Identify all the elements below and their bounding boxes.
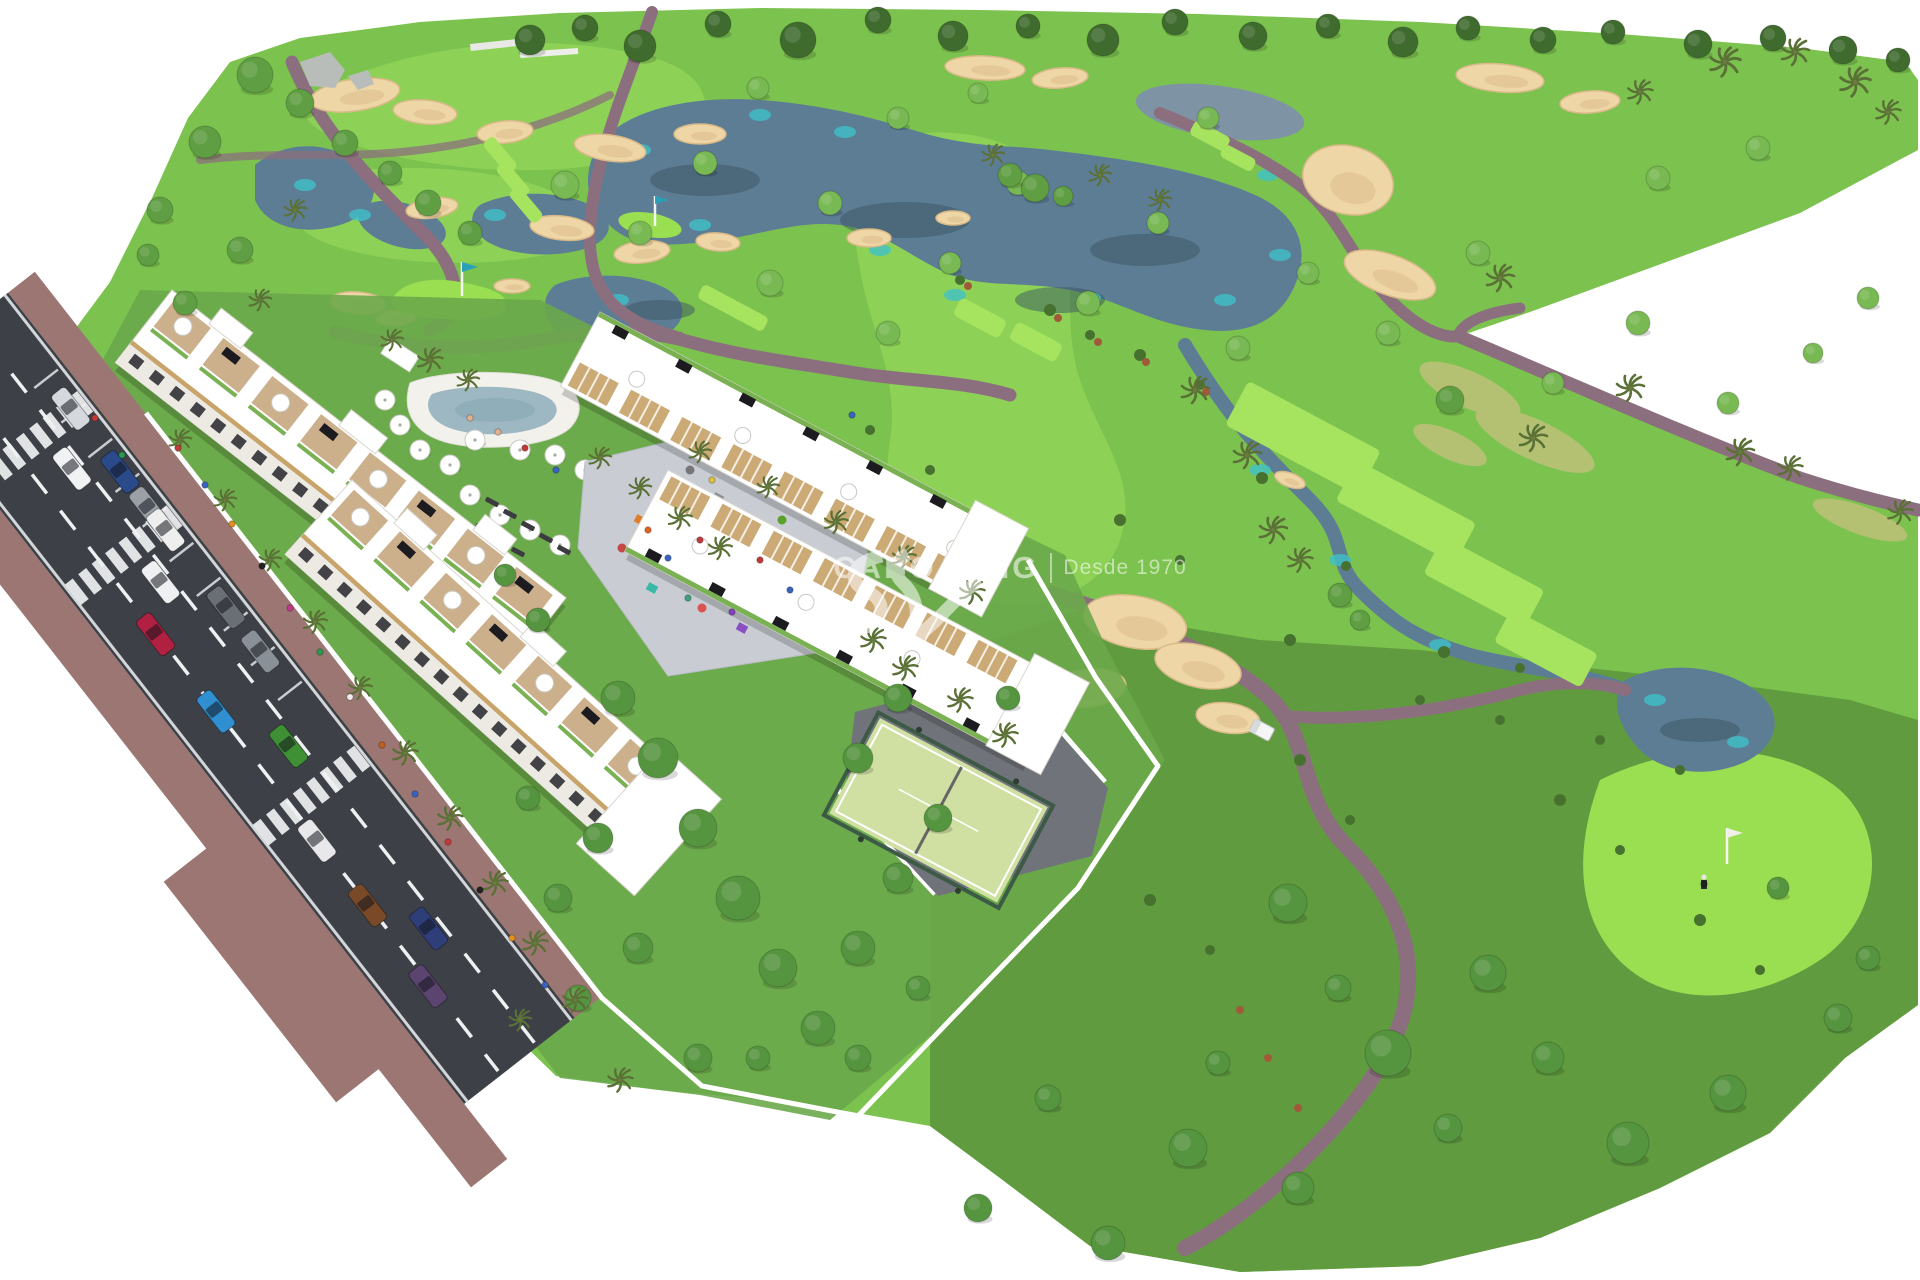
play-equipment xyxy=(698,604,707,613)
bush xyxy=(1205,945,1215,955)
person xyxy=(259,563,265,569)
tree-highlight xyxy=(1833,40,1846,53)
tree-highlight xyxy=(1749,139,1760,150)
tree-highlight xyxy=(230,240,242,252)
tree xyxy=(938,21,969,53)
tree-highlight xyxy=(1371,1036,1392,1057)
tree-highlight xyxy=(1392,31,1406,45)
tree-highlight xyxy=(1629,314,1640,325)
person xyxy=(685,595,691,601)
tree-highlight xyxy=(1828,1008,1841,1021)
bush xyxy=(1495,715,1505,725)
tree-highlight xyxy=(1165,12,1177,24)
tree-highlight xyxy=(150,200,162,212)
person xyxy=(697,537,703,543)
bunker-shade xyxy=(947,216,964,222)
tree-highlight xyxy=(764,954,781,971)
tree-highlight xyxy=(1091,28,1105,42)
tree xyxy=(1746,136,1771,161)
tree xyxy=(996,686,1021,711)
tree xyxy=(1607,1122,1649,1167)
tree-highlight xyxy=(519,29,533,43)
tree xyxy=(906,976,931,1001)
tree-highlight xyxy=(1209,1054,1220,1065)
tree-highlight xyxy=(1438,1118,1451,1131)
umbrella-pole xyxy=(553,453,556,456)
tree-highlight xyxy=(1763,28,1775,40)
tree-highlight xyxy=(1604,23,1615,34)
tree xyxy=(1325,975,1352,1003)
tree xyxy=(137,244,160,267)
person xyxy=(347,694,353,700)
tree-highlight xyxy=(971,86,980,95)
tree-highlight xyxy=(750,80,760,90)
tree-highlight xyxy=(627,937,641,951)
person xyxy=(477,887,483,893)
tree xyxy=(1365,1030,1411,1079)
tree xyxy=(1824,1004,1853,1034)
tree-highlight xyxy=(1200,110,1210,120)
tree-highlight xyxy=(847,747,861,761)
shallow-patch xyxy=(294,179,316,191)
tree-highlight xyxy=(749,1049,760,1060)
tree xyxy=(705,11,732,39)
tree-highlight xyxy=(242,62,258,78)
tree xyxy=(1470,955,1506,993)
bush xyxy=(1438,646,1450,658)
shallow-patch xyxy=(1214,294,1236,306)
tree xyxy=(1436,386,1465,416)
person xyxy=(412,791,418,797)
tree xyxy=(526,608,551,633)
person xyxy=(542,982,548,988)
tree xyxy=(746,1046,771,1071)
tree xyxy=(1162,9,1189,37)
umbrella-pole xyxy=(448,463,451,466)
tree xyxy=(237,57,273,95)
tree xyxy=(1206,1051,1231,1076)
person xyxy=(467,415,473,421)
bush xyxy=(1341,561,1351,571)
tree-highlight xyxy=(587,827,601,841)
tree xyxy=(693,151,718,176)
person xyxy=(509,935,515,941)
sand-bunker xyxy=(494,279,530,293)
person xyxy=(119,452,125,458)
tree xyxy=(1710,1075,1746,1113)
shallow-patch xyxy=(749,109,771,121)
tree xyxy=(876,321,901,346)
tree xyxy=(147,197,174,225)
bush xyxy=(1175,555,1185,565)
tree xyxy=(968,83,989,104)
tree-highlight xyxy=(529,611,540,622)
tree xyxy=(1601,20,1626,45)
bush xyxy=(1085,330,1095,340)
tree xyxy=(964,1194,993,1224)
tree-highlight xyxy=(887,867,901,881)
tree-highlight xyxy=(1319,17,1330,28)
tree-highlight xyxy=(684,814,701,831)
tree-highlight xyxy=(193,130,207,144)
tree-highlight xyxy=(1001,166,1012,177)
tree xyxy=(865,7,892,35)
bush xyxy=(1755,965,1765,975)
tree xyxy=(684,1044,713,1074)
red-shrub xyxy=(1294,1104,1302,1112)
tree xyxy=(583,823,614,855)
tree-highlight xyxy=(722,882,742,902)
tree-highlight xyxy=(1331,586,1342,597)
tree-highlight xyxy=(1889,51,1900,62)
umbrella-pole xyxy=(398,423,401,426)
tree xyxy=(841,931,875,967)
tree-highlight xyxy=(1150,215,1160,225)
play-equipment xyxy=(778,516,787,525)
person xyxy=(849,412,855,418)
red-shrub xyxy=(1264,1054,1272,1062)
red-shrub xyxy=(1142,358,1150,366)
bush xyxy=(1675,765,1685,775)
tree xyxy=(516,786,541,811)
tree xyxy=(544,884,573,914)
tree xyxy=(1147,212,1170,235)
tree xyxy=(1856,946,1881,971)
tree xyxy=(1091,1226,1125,1262)
tree xyxy=(845,1045,872,1073)
tree xyxy=(1684,30,1713,60)
person xyxy=(522,445,528,451)
shallow-patch xyxy=(689,219,711,231)
umbrella-pole xyxy=(418,448,421,451)
tree xyxy=(286,89,315,119)
tree-highlight xyxy=(805,1015,820,1030)
shallow-patch xyxy=(1727,736,1749,748)
bush xyxy=(1284,634,1296,646)
tree-highlight xyxy=(497,567,507,577)
shallow-patch xyxy=(1269,249,1291,261)
play-equipment xyxy=(686,466,695,475)
tree xyxy=(494,564,517,587)
tree xyxy=(1350,610,1371,631)
tree-highlight xyxy=(1720,395,1730,405)
tree xyxy=(628,221,653,246)
tree-highlight xyxy=(888,688,901,701)
tree-highlight xyxy=(848,1048,860,1060)
tree xyxy=(624,30,656,64)
tree-highlight xyxy=(1286,1176,1300,1190)
tree-highlight xyxy=(890,110,900,120)
tree xyxy=(780,22,816,60)
bush xyxy=(1595,735,1605,745)
tree-highlight xyxy=(1545,375,1555,385)
tree-highlight xyxy=(1770,880,1780,890)
tree xyxy=(801,1011,835,1047)
tree-highlight xyxy=(290,93,303,106)
person xyxy=(379,742,385,748)
tree-highlight xyxy=(1806,346,1815,355)
tree xyxy=(1646,166,1671,191)
tree xyxy=(1197,107,1220,130)
tree xyxy=(716,876,760,923)
scene-svg: .frond{stroke:var(--palm);stroke-width:2… xyxy=(0,0,1920,1280)
tree-highlight xyxy=(1533,30,1545,42)
tree-highlight xyxy=(1379,324,1390,335)
tree-highlight xyxy=(575,18,587,30)
tree-highlight xyxy=(1860,290,1870,300)
tree-highlight xyxy=(1328,978,1340,990)
umbrella-pole xyxy=(473,438,476,441)
tree xyxy=(1297,262,1320,285)
tree xyxy=(679,809,717,849)
tree-highlight xyxy=(1612,1127,1631,1146)
tree xyxy=(601,681,635,717)
tree xyxy=(1434,1114,1463,1144)
tree xyxy=(1269,884,1307,924)
bush xyxy=(1256,472,1268,484)
tree-highlight xyxy=(1859,949,1870,960)
tree-highlight xyxy=(461,224,472,235)
bush xyxy=(1294,754,1306,766)
person xyxy=(287,605,293,611)
tree-highlight xyxy=(1038,1088,1050,1100)
tree-highlight xyxy=(335,133,347,145)
person xyxy=(1701,881,1707,887)
tree xyxy=(1532,1042,1564,1076)
tree-highlight xyxy=(845,935,860,950)
tree xyxy=(1239,22,1268,52)
tree xyxy=(623,933,654,965)
tree-highlight xyxy=(760,273,772,285)
tree-highlight xyxy=(968,1198,981,1211)
tree xyxy=(1316,14,1341,39)
tree xyxy=(572,15,599,43)
tree xyxy=(1376,321,1401,346)
person xyxy=(229,521,235,527)
tree-highlight xyxy=(1019,17,1030,28)
tree xyxy=(1282,1172,1314,1206)
red-shrub xyxy=(964,282,972,290)
tree xyxy=(1717,392,1740,415)
tree-highlight xyxy=(1274,889,1291,906)
shallow-patch xyxy=(1644,694,1666,706)
tree xyxy=(227,237,254,265)
umbrella-pole xyxy=(518,448,521,451)
tree-highlight xyxy=(821,194,832,205)
tree xyxy=(843,743,874,775)
bush xyxy=(1554,794,1566,806)
tree-highlight xyxy=(868,10,880,22)
bush xyxy=(955,275,965,285)
tree xyxy=(757,270,784,298)
tree-highlight xyxy=(643,743,661,761)
tree-highlight xyxy=(1440,390,1453,403)
bush xyxy=(1114,514,1126,526)
tree-highlight xyxy=(942,255,952,265)
tree-highlight xyxy=(696,154,707,165)
tree xyxy=(458,221,483,246)
tree-highlight xyxy=(1229,339,1240,350)
tree-highlight xyxy=(1688,34,1701,47)
tree xyxy=(1829,36,1858,66)
tree-highlight xyxy=(1353,613,1362,622)
tree xyxy=(1328,583,1353,608)
person xyxy=(757,557,763,563)
tree-highlight xyxy=(1079,294,1090,305)
bunker-shade xyxy=(506,284,524,290)
tree-highlight xyxy=(879,324,890,335)
tree-highlight xyxy=(708,14,720,26)
tree xyxy=(883,863,914,895)
tree-highlight xyxy=(928,808,941,821)
person xyxy=(787,587,793,593)
tree xyxy=(1053,186,1074,207)
tree-highlight xyxy=(999,689,1010,700)
tree-highlight xyxy=(519,789,530,800)
bush xyxy=(1345,815,1355,825)
shallow-patch xyxy=(484,209,506,221)
tree xyxy=(1021,174,1050,204)
tree-highlight xyxy=(1174,1134,1191,1151)
tree-highlight xyxy=(1715,1080,1731,1096)
tree-highlight xyxy=(1469,244,1480,255)
bush xyxy=(1415,695,1425,705)
tree xyxy=(1466,241,1491,266)
person xyxy=(645,527,651,533)
red-shrub xyxy=(1094,338,1102,346)
tree xyxy=(638,738,678,780)
tree-highlight xyxy=(1475,960,1491,976)
person xyxy=(665,555,671,561)
tree xyxy=(884,684,913,714)
person xyxy=(709,477,715,483)
bush xyxy=(1515,663,1525,673)
palm-tree xyxy=(1617,375,1644,401)
tree xyxy=(415,190,442,218)
bunker-shade xyxy=(861,236,883,244)
tree xyxy=(887,107,910,130)
tree-highlight xyxy=(176,294,187,305)
tree xyxy=(939,252,962,275)
tree-highlight xyxy=(1095,1230,1110,1245)
tree xyxy=(1016,14,1041,39)
tree-highlight xyxy=(631,224,642,235)
sand-bunker xyxy=(847,229,891,247)
red-shrub xyxy=(1054,314,1062,322)
shallow-patch xyxy=(834,126,856,138)
tree-highlight xyxy=(1300,265,1310,275)
tree xyxy=(1456,16,1481,41)
tree-highlight xyxy=(605,685,620,700)
tree xyxy=(189,126,221,160)
bush xyxy=(1044,304,1056,316)
tree-highlight xyxy=(628,34,642,48)
person xyxy=(202,482,208,488)
bush xyxy=(865,425,875,435)
tree xyxy=(1530,27,1557,55)
tree xyxy=(924,804,953,834)
tree-highlight xyxy=(1649,169,1660,180)
tree xyxy=(1169,1129,1207,1169)
bush xyxy=(1615,845,1625,855)
tree xyxy=(998,163,1023,188)
tree xyxy=(1035,1085,1062,1113)
tree xyxy=(1767,877,1790,900)
person xyxy=(495,429,501,435)
reflection xyxy=(1660,718,1740,742)
tree-highlight xyxy=(555,175,568,188)
umbrella-pole xyxy=(468,493,471,496)
bunker-shade xyxy=(691,132,717,141)
tree xyxy=(378,161,403,186)
tree-highlight xyxy=(140,247,150,257)
tree xyxy=(551,171,580,201)
tree xyxy=(1626,311,1651,336)
aerial-render: .frond{stroke:var(--palm);stroke-width:2… xyxy=(0,0,1920,1280)
person xyxy=(317,649,323,655)
tree-highlight xyxy=(548,888,561,901)
bush xyxy=(1694,914,1706,926)
tree xyxy=(332,130,359,158)
tree xyxy=(747,77,770,100)
tree xyxy=(1886,48,1911,73)
tree xyxy=(1803,343,1824,364)
bush xyxy=(1144,894,1156,906)
tree-highlight xyxy=(1243,26,1256,39)
umbrella-pole xyxy=(383,398,386,401)
person xyxy=(729,609,735,615)
sand-bunker xyxy=(936,211,970,225)
tree xyxy=(1388,27,1419,59)
person xyxy=(445,839,451,845)
umbrella-pole xyxy=(498,513,501,516)
tree xyxy=(1542,372,1565,395)
tree-highlight xyxy=(785,26,801,42)
tree xyxy=(1226,336,1251,361)
tree-highlight xyxy=(1025,178,1038,191)
tree xyxy=(173,291,198,316)
tree-highlight xyxy=(688,1048,701,1061)
tree xyxy=(515,25,546,57)
tree xyxy=(818,191,843,216)
person xyxy=(175,445,181,451)
tree-highlight xyxy=(418,193,430,205)
tree-highlight xyxy=(1536,1046,1550,1060)
reflection xyxy=(1090,234,1200,266)
tree-highlight xyxy=(1056,189,1065,198)
tree xyxy=(1076,291,1101,316)
tree xyxy=(1857,287,1880,310)
red-shrub xyxy=(1236,1006,1244,1014)
tree-highlight xyxy=(381,164,392,175)
sand-bunker xyxy=(674,124,726,144)
person xyxy=(92,415,98,421)
shallow-patch xyxy=(349,209,371,221)
tree-highlight xyxy=(909,979,920,990)
person xyxy=(553,467,559,473)
tree xyxy=(759,949,797,989)
tree-highlight xyxy=(942,25,956,39)
tree-highlight xyxy=(1459,19,1470,30)
bush xyxy=(925,465,935,475)
tree xyxy=(1087,24,1119,58)
